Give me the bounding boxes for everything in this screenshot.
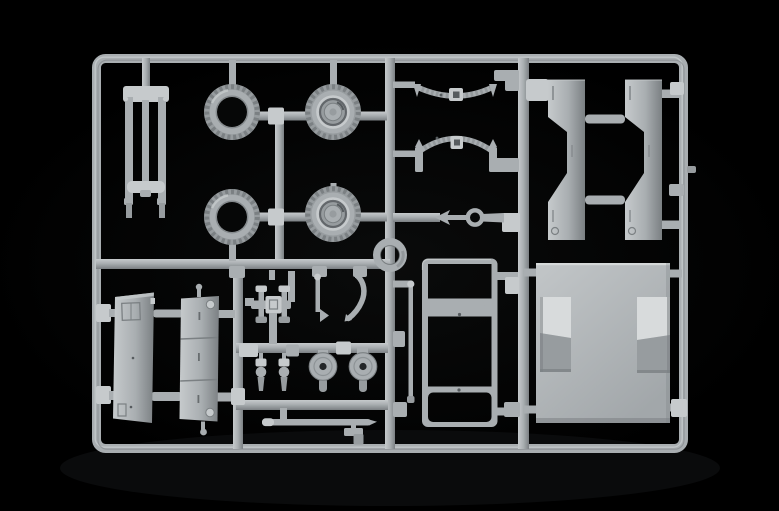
- small-pin-part-2: [279, 353, 290, 391]
- window-frame-panel: [422, 259, 498, 428]
- leaf-spring-arched-up: [415, 136, 497, 172]
- ladder-support-part: [123, 86, 169, 218]
- cross-axle-fitting: [251, 286, 291, 345]
- support-foot-right: [159, 203, 165, 218]
- sprue-photo: [0, 0, 779, 511]
- towing-ring-eyelet: [468, 210, 482, 224]
- wheel-with-hub-1: [305, 84, 361, 140]
- tire-1: [204, 84, 260, 140]
- drilled-disc-1: [309, 353, 337, 392]
- tire-2: [204, 189, 260, 245]
- leaf-spring-bowed-down: [413, 84, 497, 101]
- door-panel-2: [180, 284, 220, 436]
- cut-gate-nub: [687, 166, 696, 173]
- photo-stage: [0, 0, 779, 511]
- long-thin-rod-part: [262, 418, 377, 426]
- drilled-disc-2: [349, 353, 377, 392]
- lever-with-flag: [314, 274, 329, 322]
- chassis-rail-panel-2: [625, 80, 662, 240]
- raised-box-right: [637, 297, 670, 373]
- thin-support-rod: [407, 280, 415, 403]
- door-panel-1: [113, 293, 155, 424]
- floor-panel-with-boxes: [536, 263, 670, 423]
- towing-rod-with-ring: [435, 210, 504, 225]
- wheel-with-hub-2: [305, 186, 361, 242]
- raised-box-left: [540, 297, 571, 372]
- support-foot-left: [126, 203, 132, 218]
- small-pin-part-1: [256, 353, 267, 391]
- chassis-rail-panel-1: [548, 80, 585, 240]
